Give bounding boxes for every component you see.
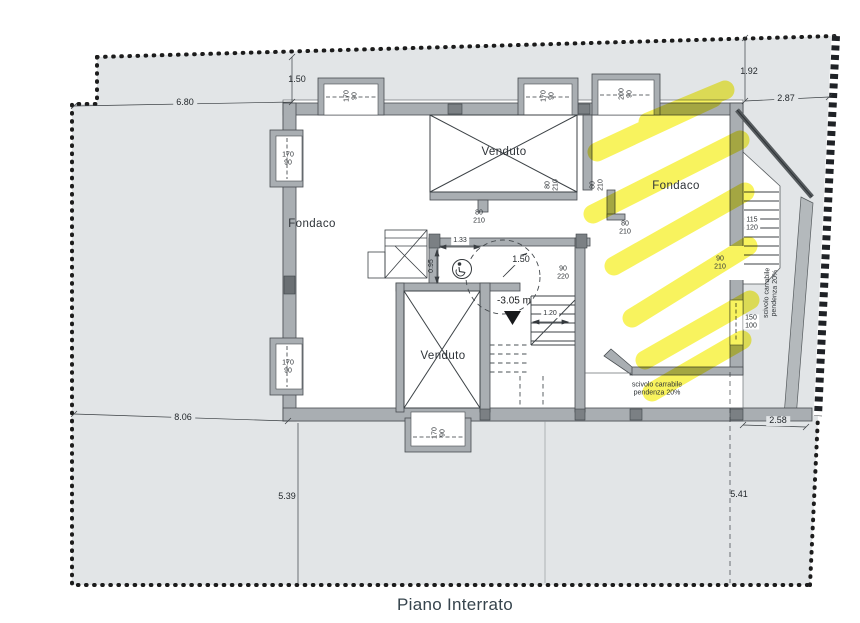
floor-level-label: -3.05 m <box>497 297 531 308</box>
external-stair-w: 115 <box>746 216 758 224</box>
door-fondaco-inner-w: 80 <box>619 220 631 228</box>
external-stair-h: 120 <box>746 224 758 232</box>
door-fondaco-left-h: 210 <box>597 179 605 191</box>
window-top-2-h: 90 <box>548 90 556 102</box>
window-top-2-label: 170 90 <box>540 90 555 102</box>
floor-plan-page: 1.50 6.80 1.92 2.87 8.06 5.39 5.41 2.58 … <box>0 0 860 623</box>
window-left-upper-h: 90 <box>282 159 294 167</box>
window-left-lower-w: 170 <box>282 359 294 367</box>
ramp-label-bottom-line1: scivolo carrabile <box>632 381 682 389</box>
window-right-w: 150 <box>745 314 757 322</box>
door-fondaco-left-label: 80 210 <box>589 179 604 191</box>
window-top-3-w: 200 <box>618 88 626 100</box>
dim-plot-bottom-right: 5.41 <box>730 490 748 500</box>
dim-plot-left-bottom: 8.06 <box>171 413 195 423</box>
door-venduto-right-h: 210 <box>552 179 560 191</box>
dim-plot-right-gap-h: 2.87 <box>774 94 798 104</box>
dim-plot-bottom-right-h: 2.58 <box>766 416 790 426</box>
dim-plot-top-gap: 1.50 <box>288 75 306 85</box>
window-bottom-h: 90 <box>439 427 447 439</box>
room-label-fondaco-left: Fondaco <box>288 218 336 230</box>
page-title: Piano Interrato <box>397 596 513 614</box>
door-external-label: 90 210 <box>714 255 726 270</box>
dim-lobby-width: 1.33 <box>451 237 469 245</box>
window-top-1-label: 170 90 <box>343 90 358 102</box>
window-left-upper-w: 170 <box>282 151 294 159</box>
dim-turning-radius: 1.50 <box>510 255 532 265</box>
dim-lobby-depth: 0.95 <box>428 259 436 273</box>
door-fondaco-left-w: 80 <box>589 179 597 191</box>
ramp-label-bottom-line2: pendenza 20% <box>632 389 682 397</box>
door-external-h: 210 <box>714 263 726 271</box>
window-top-2-w: 170 <box>540 90 548 102</box>
ramp-label-bottom: scivolo carrabile pendenza 20% <box>632 381 682 396</box>
dim-plot-bottom-left: 5.39 <box>278 492 296 502</box>
window-left-lower-h: 90 <box>282 367 294 375</box>
window-top-3-label: 200 90 <box>618 88 633 100</box>
door-venduto-bottom-label: 80 210 <box>473 209 485 224</box>
ramp-label-side: scivolo carrabile pendenza 20% <box>763 268 780 319</box>
window-right-h: 100 <box>745 322 757 330</box>
door-lobby-right-label: 90 220 <box>557 265 569 280</box>
door-venduto-right-w: 80 <box>544 179 552 191</box>
window-left-lower-label: 170 90 <box>282 359 294 374</box>
floor-plan-drawing <box>0 0 860 623</box>
dim-stair-width: 1.20 <box>541 310 559 318</box>
door-venduto-bottom-w: 80 <box>473 209 485 217</box>
left-wall-door <box>284 276 295 294</box>
window-right-label: 150 100 <box>743 314 759 329</box>
door-venduto-bottom-h: 210 <box>473 217 485 225</box>
window-bottom-w: 170 <box>431 427 439 439</box>
door-lobby-right-h: 220 <box>557 273 569 281</box>
wheelchair-lift-icon <box>453 260 472 279</box>
door-fondaco-inner-label: 80 210 <box>619 220 631 235</box>
door-lobby-right-w: 90 <box>557 265 569 273</box>
external-stair-label: 115 120 <box>744 216 760 231</box>
dim-plot-left-top: 6.80 <box>173 98 197 108</box>
room-label-venduto-bottom: Venduto <box>420 350 465 362</box>
dim-plot-right-gap-v: 1.92 <box>740 67 758 77</box>
window-top-3-h: 90 <box>626 88 634 100</box>
door-fondaco-inner-h: 210 <box>619 228 631 236</box>
room-label-fondaco-right: Fondaco <box>652 180 700 192</box>
door-venduto-right-label: 80 210 <box>544 179 559 191</box>
window-bottom-label: 170 90 <box>431 427 446 439</box>
window-left-upper-label: 170 90 <box>282 151 294 166</box>
window-top-1-w: 170 <box>343 90 351 102</box>
door-external-w: 90 <box>714 255 726 263</box>
window-top-1-h: 90 <box>351 90 359 102</box>
room-label-venduto-top: Venduto <box>481 146 526 158</box>
